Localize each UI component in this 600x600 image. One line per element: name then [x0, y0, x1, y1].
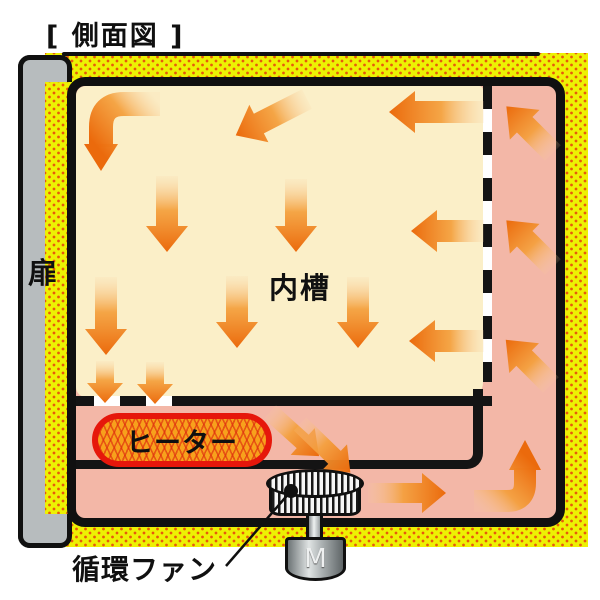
heater-label: ヒーター — [126, 421, 238, 460]
motor-label: M — [304, 544, 326, 574]
perforated-wall-right — [483, 86, 492, 382]
circulation-fan-label: 循環ファン — [72, 548, 217, 588]
diagram-title: [ 側面図 ] — [46, 14, 184, 53]
door-panel-bottom — [18, 514, 72, 548]
door-panel-top — [18, 55, 72, 82]
inner-chamber-label: 内槽 — [245, 265, 355, 307]
inner-chamber — [76, 86, 483, 397]
motor: M — [285, 537, 346, 581]
heater: ヒーター — [92, 413, 272, 467]
side-view-diagram: ヒーター M [ 側面図 ] 扉 内槽 循環ファン — [0, 0, 600, 600]
door-label: 扉 — [28, 250, 57, 292]
circulation-fan-top — [266, 469, 364, 498]
